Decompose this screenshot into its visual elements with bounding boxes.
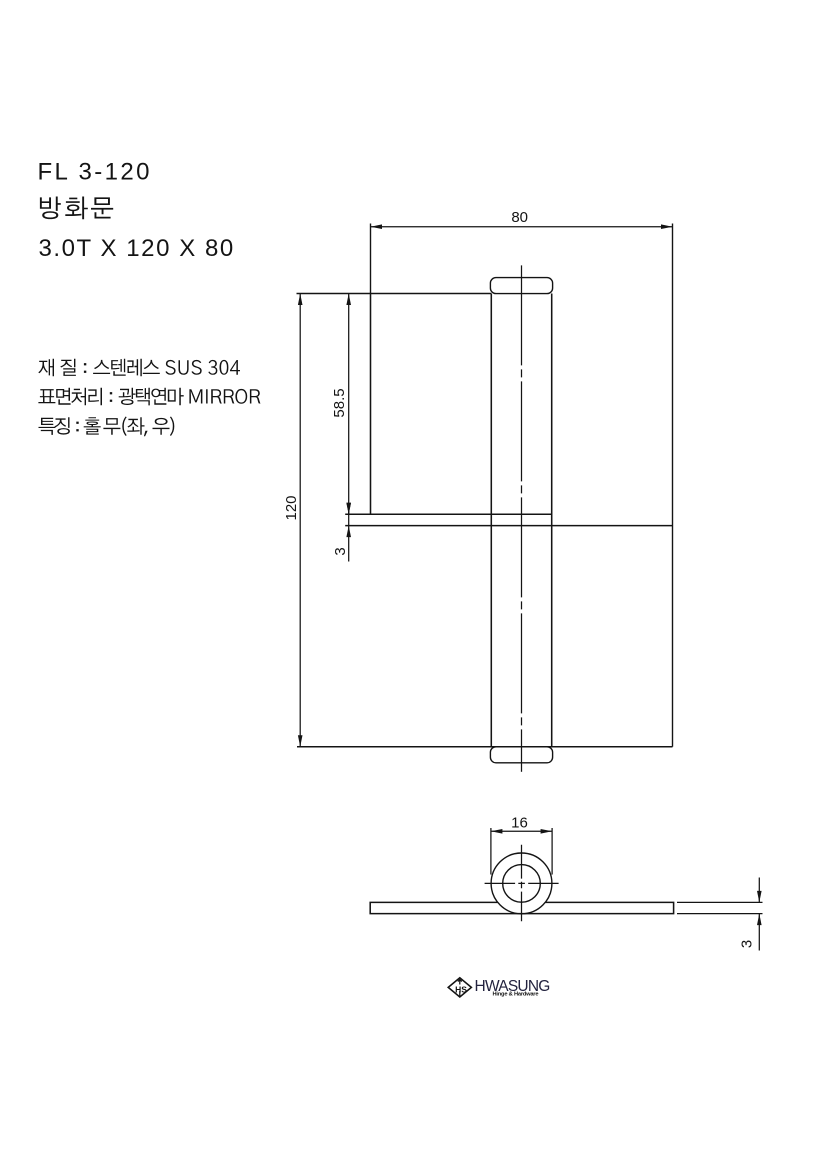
svg-text:80: 80 xyxy=(511,209,528,226)
svg-text:16: 16 xyxy=(511,814,528,831)
svg-text:HS: HS xyxy=(455,984,467,994)
svg-text:3: 3 xyxy=(332,547,349,555)
svg-text:58.5: 58.5 xyxy=(331,388,348,417)
svg-text:3.0T X 120 X 80: 3.0T X 120 X 80 xyxy=(39,235,235,262)
svg-text:FL 3-120: FL 3-120 xyxy=(38,159,152,186)
svg-text:3: 3 xyxy=(739,940,756,948)
svg-text:Hinge & Hardware: Hinge & Hardware xyxy=(493,991,539,997)
svg-text:120: 120 xyxy=(283,495,300,520)
